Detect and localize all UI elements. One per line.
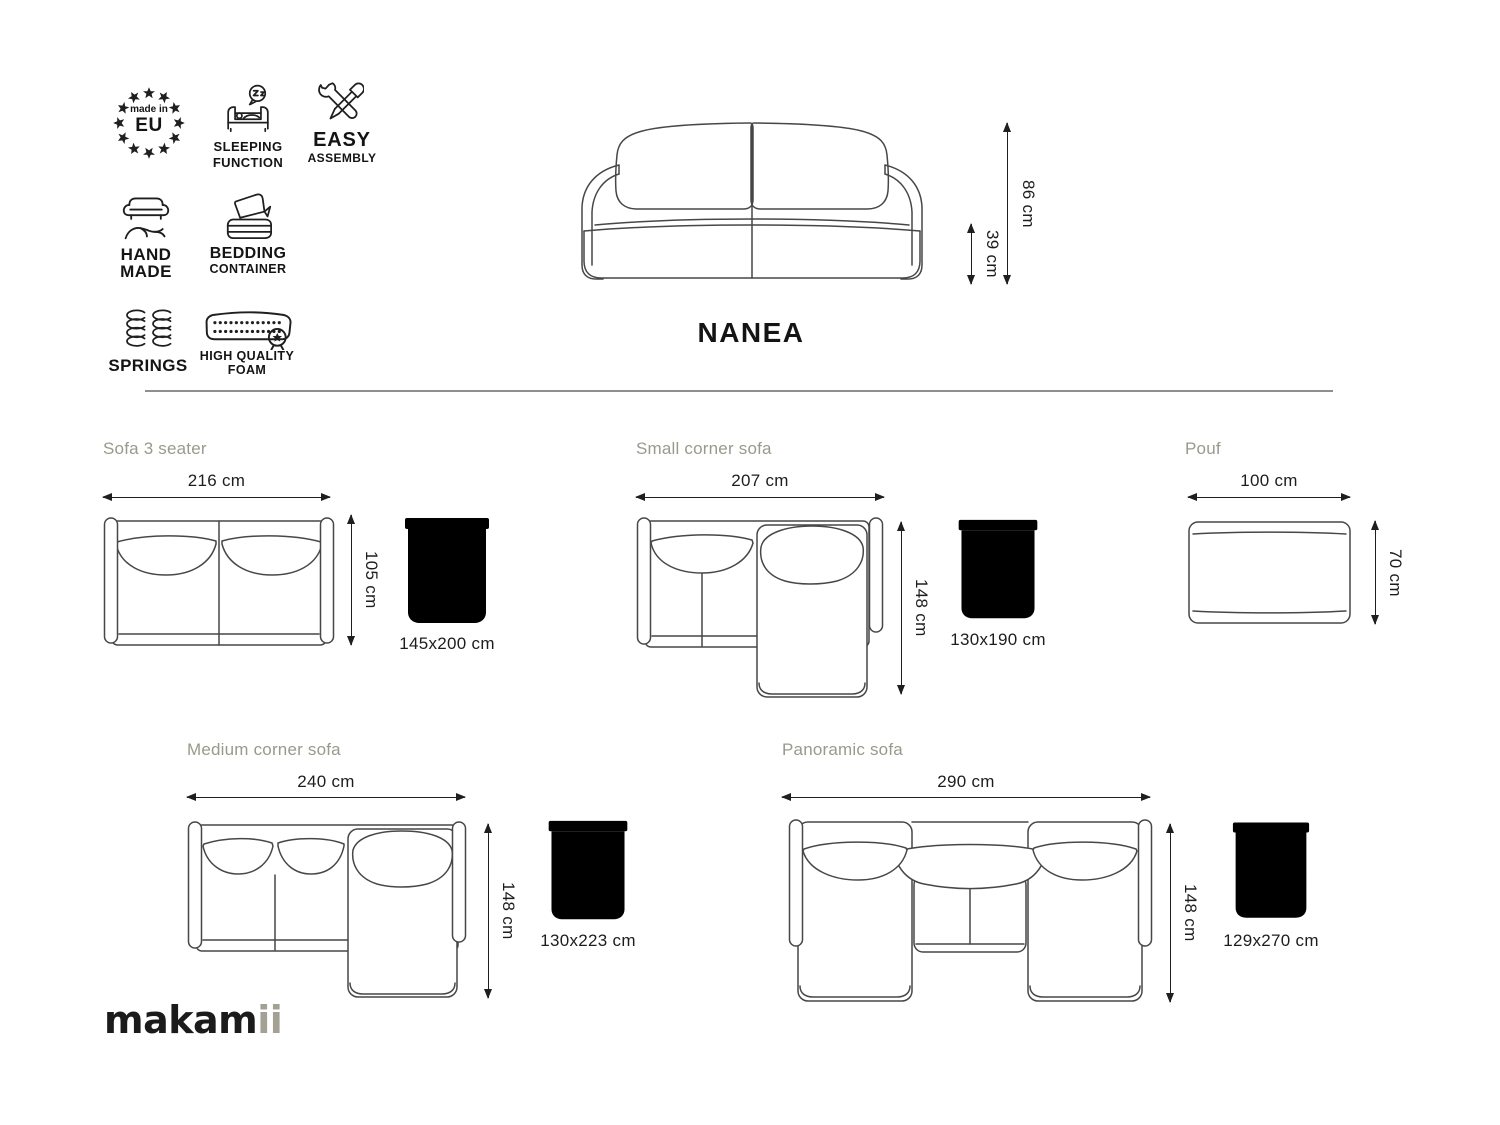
sofa3-width-label: 216 cm xyxy=(103,471,330,491)
pouf-depth-arrow xyxy=(1375,521,1376,624)
panoramic-width-arrow xyxy=(782,797,1150,798)
small-corner-width-label: 207 cm xyxy=(636,471,884,491)
small-corner-depth-arrow xyxy=(901,522,902,694)
medium-corner-width-label: 240 cm xyxy=(187,772,465,792)
section-title-small-corner-sofa: Small corner sofa xyxy=(636,439,772,459)
sofa3-top-view-drawing xyxy=(103,513,335,648)
panoramic-top-view-drawing xyxy=(788,818,1153,1004)
panoramic-bed-drawing xyxy=(1232,821,1310,922)
medium-corner-bed-drawing xyxy=(546,820,630,923)
brand-logo-main: makam xyxy=(104,998,257,1042)
sleeping-function-icon xyxy=(223,82,273,134)
easy-assembly-label-line2: ASSEMBLY xyxy=(306,151,378,166)
sofa3-bed-drawing xyxy=(404,517,490,627)
product-name: NANEA xyxy=(601,317,901,349)
panoramic-depth-arrow xyxy=(1170,824,1171,1002)
section-divider xyxy=(145,390,1333,392)
eu-badge-small-text: made in xyxy=(112,104,186,115)
brand-logo: makamii xyxy=(104,998,282,1042)
medium-corner-depth-label: 148 cm xyxy=(496,824,520,998)
section-title-medium-corner-sofa: Medium corner sofa xyxy=(187,740,341,760)
spec-sheet-page: made in EU SLEEPING FUNCTION EASY ASSEMB… xyxy=(0,0,1500,1125)
section-title-sofa-3-seater: Sofa 3 seater xyxy=(103,439,207,459)
panoramic-width-label: 290 cm xyxy=(816,772,1116,792)
pouf-depth-label: 70 cm xyxy=(1383,521,1407,624)
medium-corner-width-arrow xyxy=(187,797,465,798)
total-height-arrow xyxy=(1007,123,1008,284)
high-quality-foam-icon xyxy=(205,310,293,350)
section-title-pouf: Pouf xyxy=(1185,439,1221,459)
sofa3-bed-size-label: 145x200 cm xyxy=(379,634,515,654)
brand-logo-accent: ii xyxy=(257,998,282,1042)
sofa3-depth-arrow xyxy=(351,515,352,645)
small-corner-bed-drawing xyxy=(956,519,1040,622)
hand-made-icon xyxy=(118,192,174,242)
pouf-top-view-drawing xyxy=(1188,521,1351,624)
easy-assembly-label-line1: EASY xyxy=(306,128,378,153)
seat-height-arrow xyxy=(971,224,972,284)
springs-label-line1: SPRINGS xyxy=(104,355,192,376)
small-corner-width-arrow xyxy=(636,497,884,498)
sofa3-width-arrow xyxy=(103,497,330,498)
bedding-container-label-line1: BEDDING xyxy=(196,244,300,264)
pouf-width-label: 100 cm xyxy=(1188,471,1350,491)
sleeping-function-label-line1: SLEEPING xyxy=(199,139,297,155)
medium-corner-bed-size-label: 130x223 cm xyxy=(520,931,656,951)
panoramic-bed-size-label: 129x270 cm xyxy=(1203,931,1339,951)
springs-icon xyxy=(122,306,174,352)
high-quality-foam-label-line2: FOAM xyxy=(193,363,301,379)
small-corner-top-view-drawing xyxy=(636,513,886,698)
bedding-container-icon xyxy=(226,190,272,242)
total-height-label: 86 cm xyxy=(1016,123,1040,284)
seat-height-label: 39 cm xyxy=(980,224,1004,284)
easy-assembly-icon xyxy=(318,82,364,126)
sleeping-function-label-line2: FUNCTION xyxy=(199,155,297,171)
bedding-container-label-line2: CONTAINER xyxy=(196,262,300,278)
pouf-width-arrow xyxy=(1188,497,1350,498)
sofa3-depth-label: 105 cm xyxy=(359,515,383,645)
small-corner-bed-size-label: 130x190 cm xyxy=(930,630,1066,650)
panoramic-depth-label: 148 cm xyxy=(1178,824,1202,1002)
small-corner-depth-label: 148 cm xyxy=(909,522,933,694)
medium-corner-depth-arrow xyxy=(488,824,489,998)
medium-corner-top-view-drawing xyxy=(187,818,467,998)
hand-made-label-line2: MADE xyxy=(108,261,184,282)
eu-badge-big-text: EU xyxy=(112,115,186,137)
section-title-panoramic-sofa: Panoramic sofa xyxy=(782,740,903,760)
sofa-front-view-drawing xyxy=(557,115,947,285)
